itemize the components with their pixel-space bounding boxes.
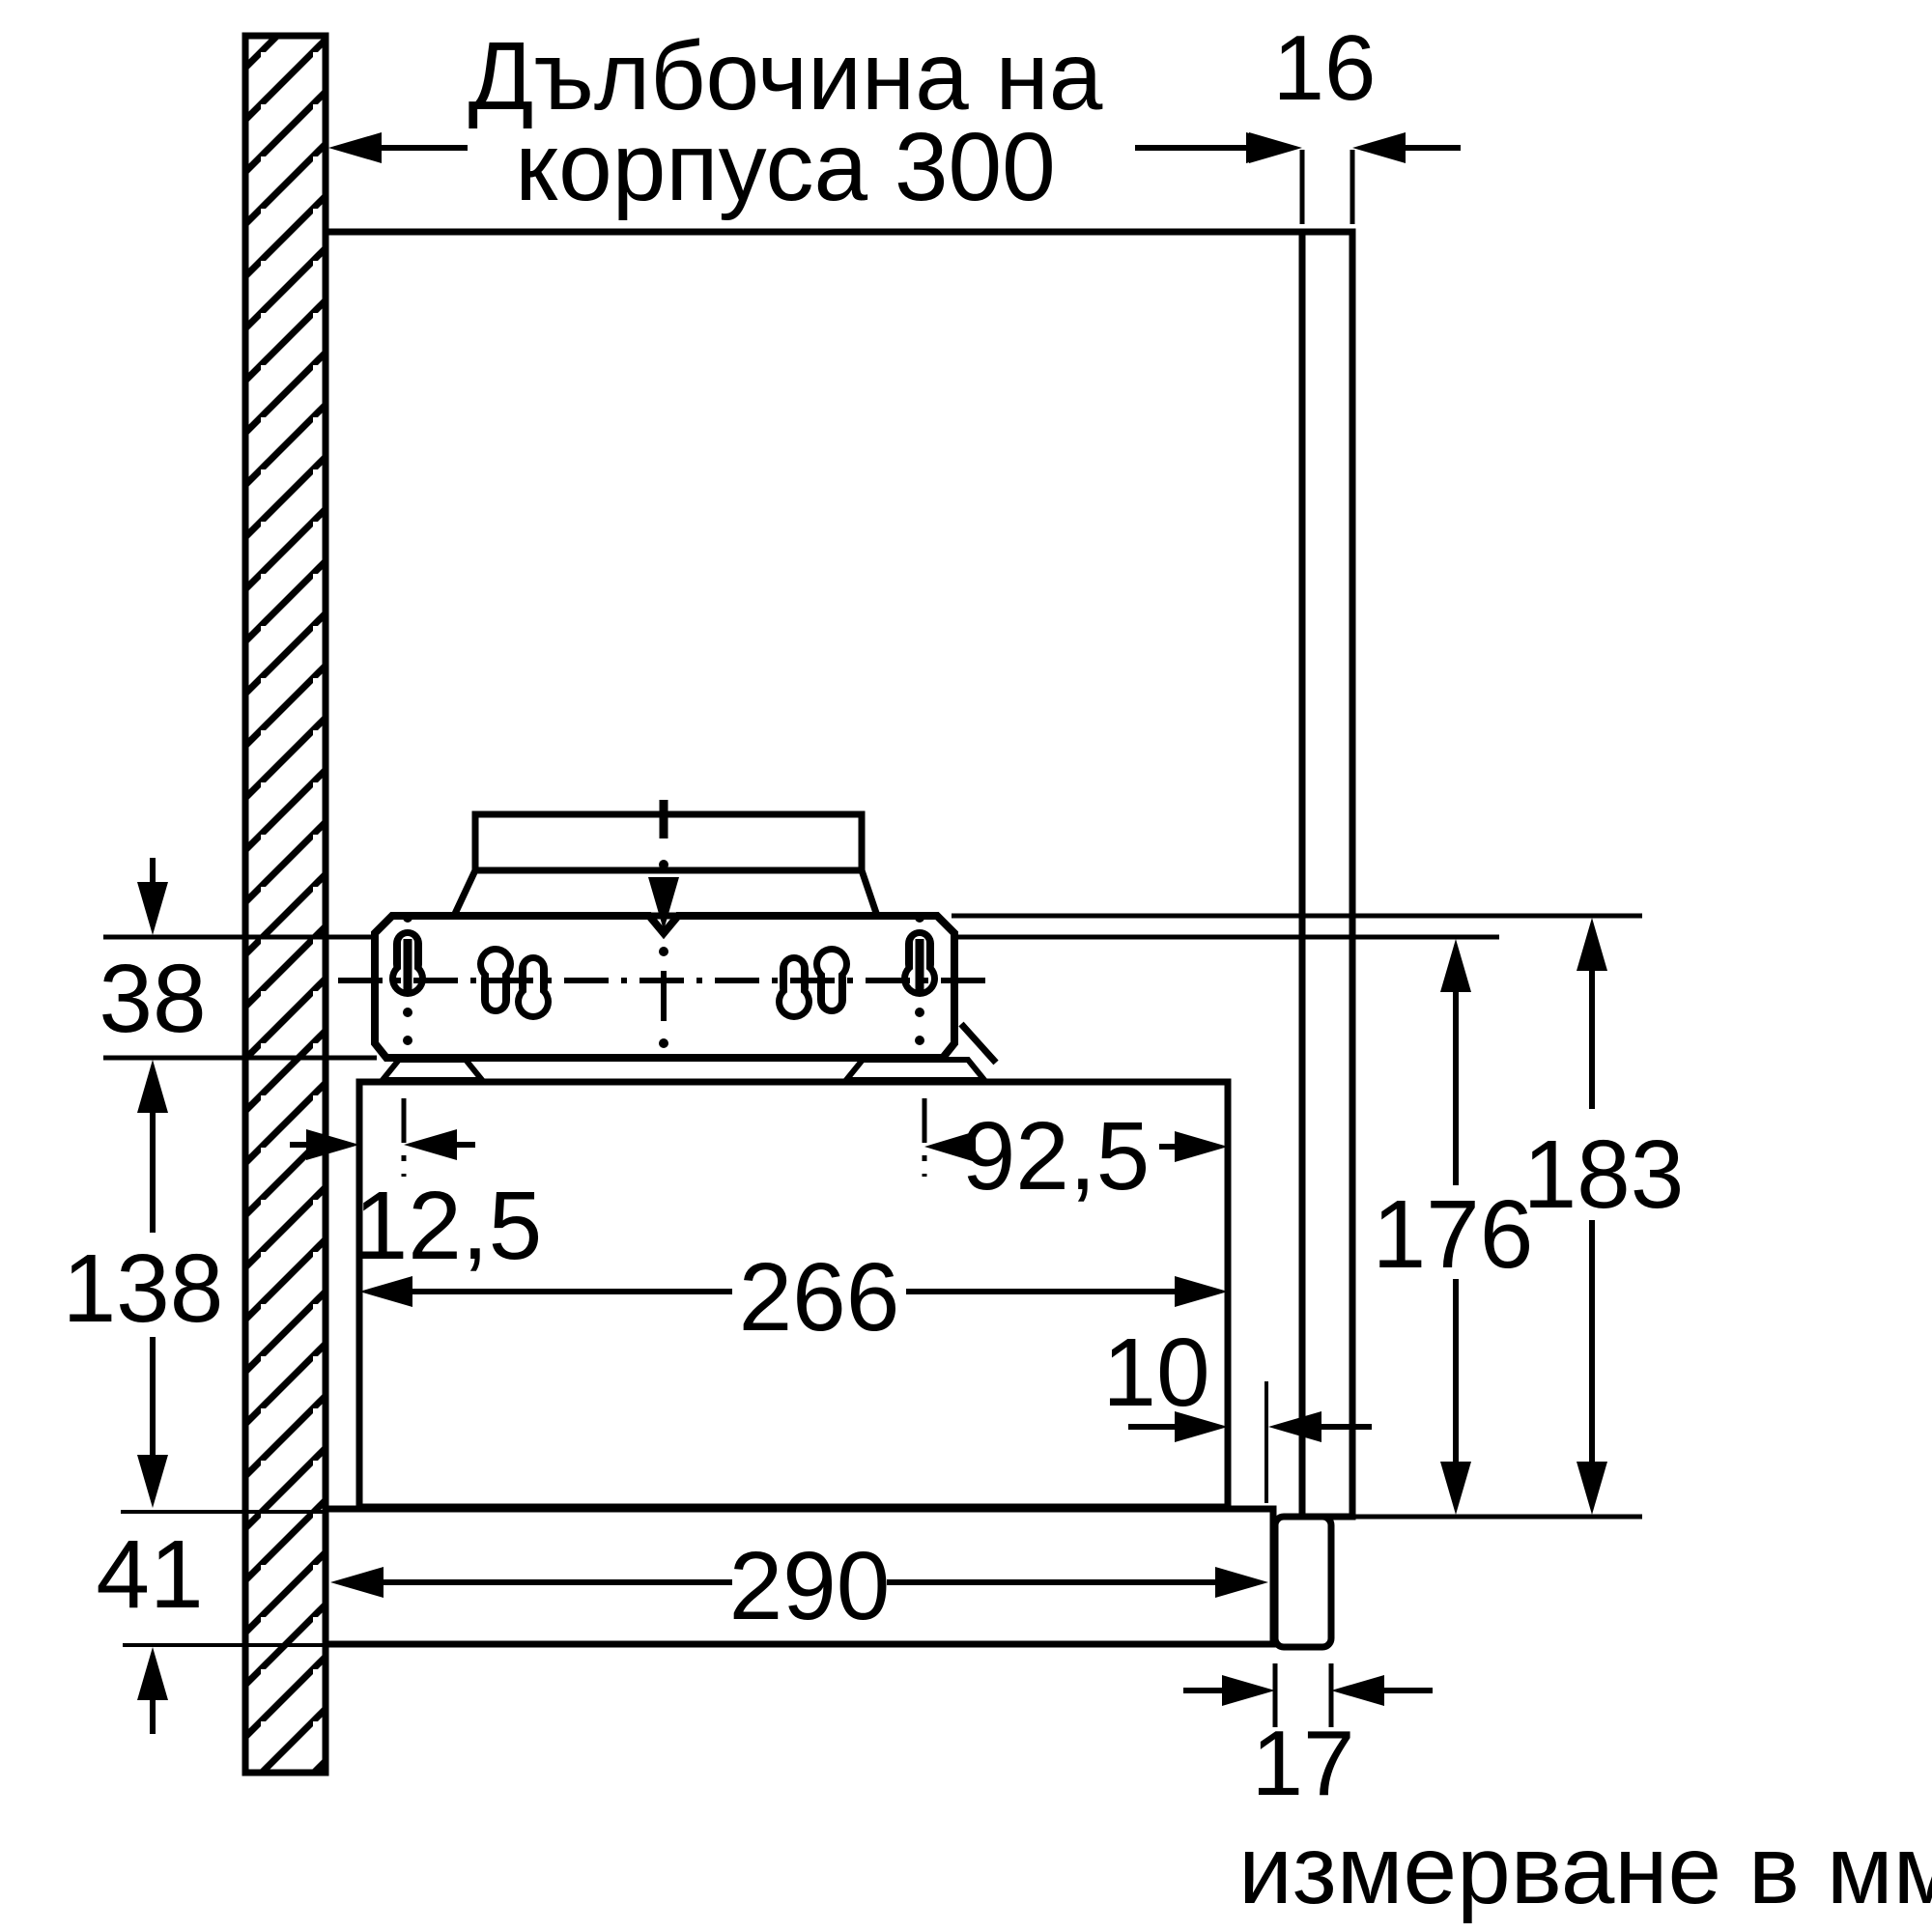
dim-16: 16 — [1135, 16, 1461, 224]
dim-12-5-label: 12,5 — [355, 1172, 543, 1280]
dim-10-label: 10 — [1102, 1319, 1209, 1427]
dim-176: 176 — [1373, 939, 1534, 1515]
dim-266-label: 266 — [739, 1243, 900, 1351]
dim-183-label: 183 — [1523, 1121, 1685, 1229]
dim-41: 41 — [96, 1520, 203, 1734]
dim-17: 17 — [1183, 1663, 1433, 1815]
dim-290-label: 290 — [729, 1532, 891, 1640]
dim-138-label: 138 — [63, 1235, 224, 1343]
title-line-2: корпуса 300 — [515, 113, 1055, 221]
cabinet-side-panel — [1302, 232, 1352, 1517]
dim-38: 38 — [99, 858, 206, 1053]
dim-138: 138 — [63, 1060, 224, 1508]
installation-diagram-page: Дълбочина на корпуса 300 16 38 138 41 — [0, 0, 1932, 1932]
dim-176-label: 176 — [1373, 1180, 1534, 1289]
dim-16-label: 16 — [1273, 16, 1377, 120]
dim-17-label: 17 — [1252, 1712, 1355, 1815]
hood-foot-right — [846, 1060, 984, 1080]
units-note: измерване в мм — [1238, 1816, 1932, 1924]
dim-depth-300: Дълбочина на корпуса 300 — [328, 22, 1299, 221]
dim-38-label: 38 — [99, 945, 206, 1053]
dim-92-5-label: 92,5 — [962, 1102, 1151, 1210]
dim-183: 183 — [1523, 918, 1685, 1515]
dim-41-label: 41 — [96, 1520, 203, 1629]
mounting-bracket — [375, 916, 996, 1063]
hood-foot-left — [383, 1060, 482, 1080]
handle-strip-block — [1275, 1517, 1331, 1647]
hood-installation-diagram: Дълбочина на корпуса 300 16 38 138 41 — [0, 0, 1932, 1932]
